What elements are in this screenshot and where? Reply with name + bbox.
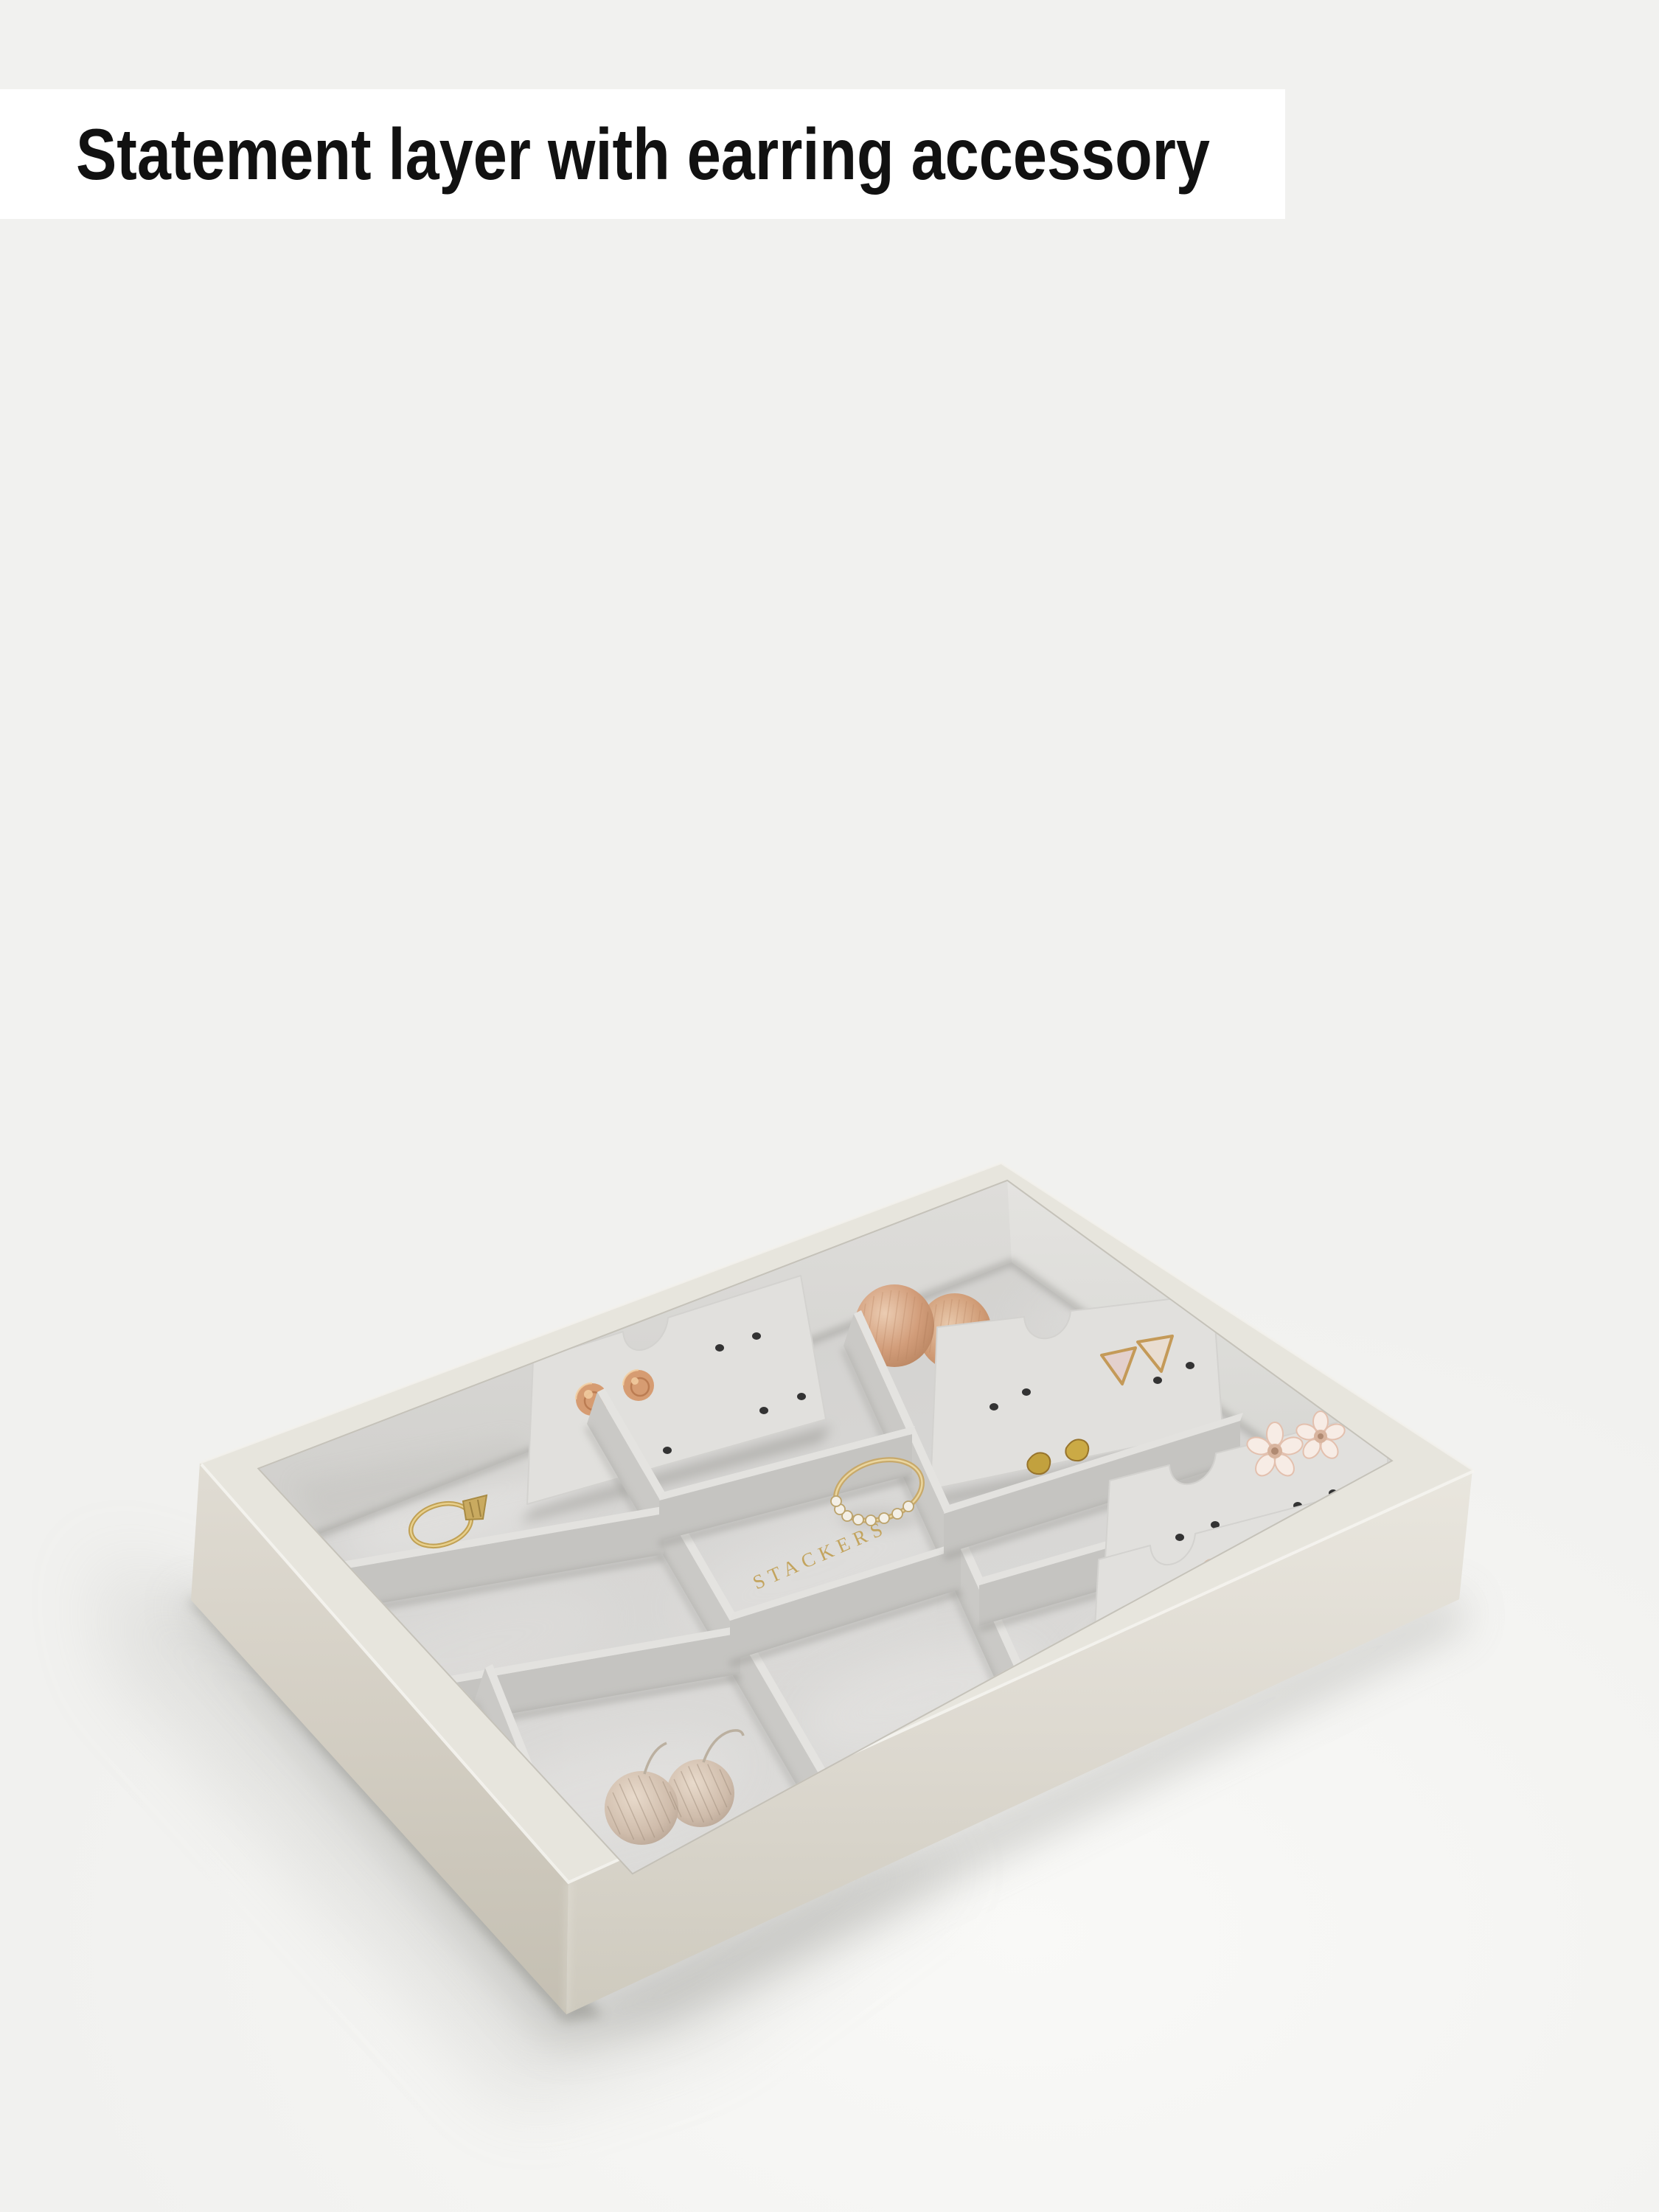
svg-text:Statement layer with earring a: Statement layer with earring accessory: [76, 114, 1210, 195]
